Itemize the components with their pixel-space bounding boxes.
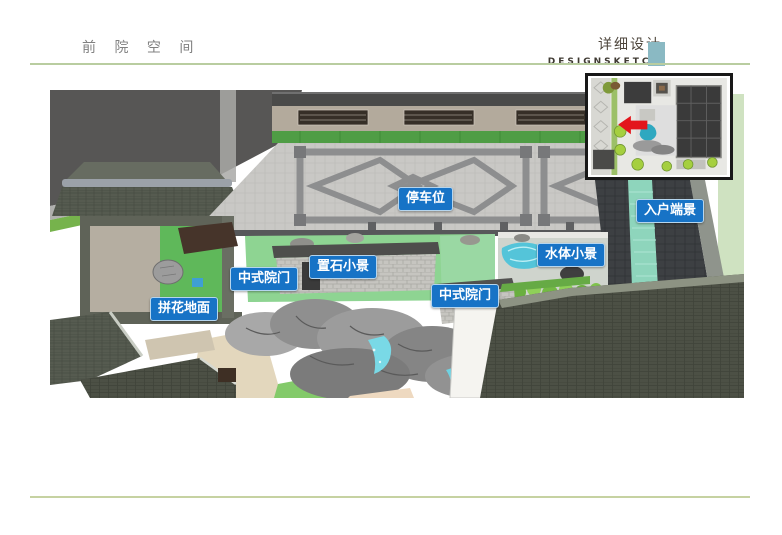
annotation-chinese-gate-1: 中式院门	[230, 267, 298, 291]
design-slide: 前 院 空 间 详细设计 DESIGNSKETCH	[0, 0, 782, 535]
annotation-stone-feature: 置石小景	[309, 255, 377, 279]
gate-roof-left	[52, 162, 244, 216]
subtitle-cn: 详细设计	[548, 34, 662, 54]
header-divider-line	[30, 63, 750, 65]
footer-divider-line	[30, 496, 750, 498]
subtitle-en: DESIGNSKETCH	[548, 57, 662, 67]
annotation-paving-pattern: 拼花地面	[150, 297, 218, 321]
annotation-entry-view: 入户端景	[636, 199, 704, 223]
annotation-chinese-gate-2: 中式院门	[431, 284, 499, 308]
entrance-walkway	[595, 180, 726, 293]
annotation-water-feature: 水体小景	[537, 243, 605, 267]
page-title: 前 院 空 间	[82, 37, 200, 57]
site-plan-svg	[590, 78, 728, 175]
site-plan-inset	[585, 73, 733, 180]
annotation-parking-space: 停车位	[398, 187, 453, 211]
